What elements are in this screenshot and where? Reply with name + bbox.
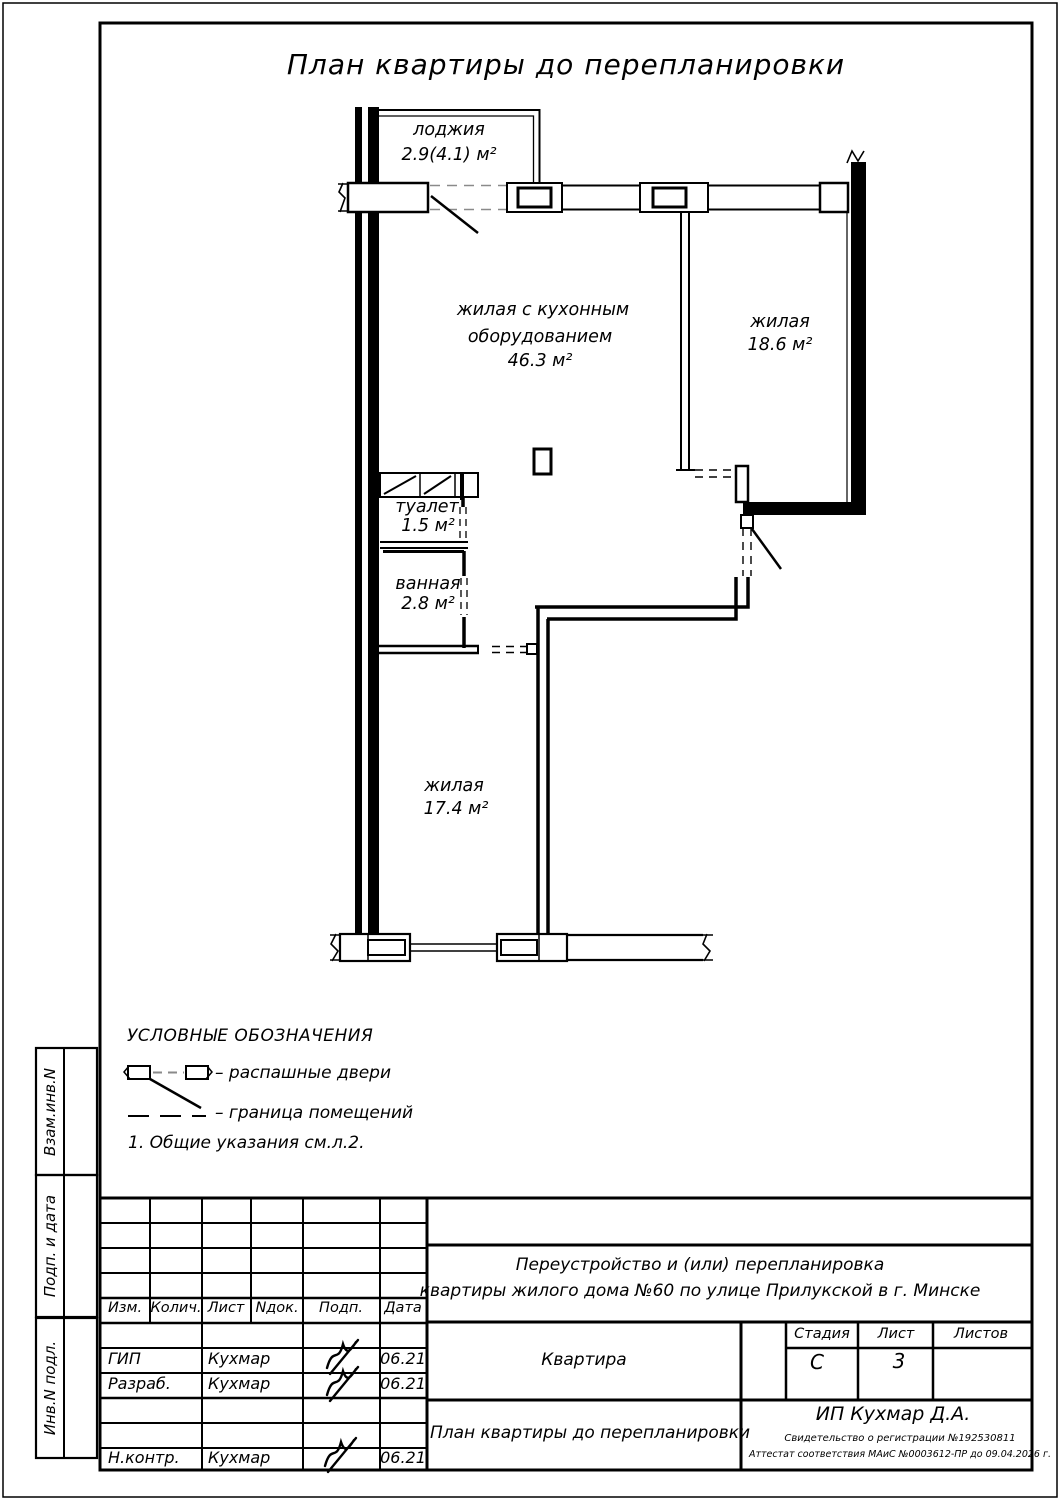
sidebar-label-vzam-inv: Взам.инв.N: [43, 1068, 59, 1156]
entrance-door-swing: [431, 196, 478, 233]
tb-certificate2: Аттестат соответствия МАиС №0003612-ПР д…: [749, 1450, 1051, 1460]
room-label-living-kitchen-2: оборудованием: [468, 328, 612, 346]
legend-item-swing-doors: – распашные двери: [215, 1065, 391, 1083]
tb-role-gip: ГИП: [108, 1351, 141, 1368]
room-area-bath: 2.8 м²: [401, 595, 455, 613]
tb-col-ndok: Nдок.: [255, 1301, 298, 1316]
legend-heading: УСЛОВНЫЕ ОБОЗНАЧЕНИЯ: [127, 1028, 373, 1046]
room-label-loggia: лоджия: [413, 121, 485, 139]
room-area-living-kitchen: 46.3 м²: [508, 352, 573, 370]
legend-item-room-boundary: – граница помещений: [215, 1105, 413, 1123]
room-label-toilet: туалет: [395, 498, 458, 516]
corridor-walls: [535, 577, 748, 934]
room-label-bath: ванная: [395, 575, 460, 593]
tb-sheets-label: Листов: [954, 1327, 1008, 1342]
signatures: [325, 1340, 358, 1472]
tb-col-podp: Подп.: [319, 1301, 363, 1316]
room-label-living-bottom: жилая: [424, 777, 484, 795]
tb-name-nkontr: Кухмар: [208, 1450, 270, 1467]
room-area-living-bottom: 17.4 м²: [424, 800, 489, 818]
legend-note: 1. Общие указания см.л.2.: [128, 1135, 364, 1153]
drawing-sheet: План квартиры до перепланировки лоджия 2…: [0, 0, 1060, 1500]
tb-date-nkontr: 06.21: [380, 1450, 426, 1467]
sidebar-label-podp-data: Подп. и дата: [43, 1195, 59, 1297]
legend-symbols: [124, 1066, 212, 1116]
tb-stage-value: С: [810, 1352, 824, 1373]
tb-project-line2: квартиры жилого дома №60 по улице Прилук…: [420, 1283, 981, 1301]
right-room-door: [741, 515, 781, 576]
tb-certificate1: Свидетельство о регистрации №192530811: [784, 1434, 1015, 1445]
tb-col-kolich: Колич.: [150, 1301, 201, 1316]
corner-wall-block: [820, 183, 848, 212]
bottom-wall-band: [330, 934, 713, 961]
wall-break-top-right: [847, 151, 864, 163]
tb-sheet-value: 3: [893, 1351, 906, 1372]
signature-nkontr: [325, 1438, 356, 1472]
room-label-living-kitchen-1: жилая с кухонным: [457, 301, 629, 319]
tb-date-razrab: 06.21: [380, 1376, 426, 1393]
vent-shaft: [380, 473, 478, 500]
room-label-living-right: жилая: [750, 313, 810, 331]
tb-role-razrab: Разраб.: [108, 1376, 171, 1393]
room-area-loggia: 2.9(4.1) м²: [401, 146, 496, 164]
tb-stage-label: Стадия: [794, 1327, 850, 1342]
drawing-linework: [0, 0, 1060, 1500]
wall-break-bottom-right: [702, 934, 713, 961]
tb-drawing-name: План квартиры до перепланировки: [430, 1425, 750, 1443]
tb-col-izm: Изм.: [108, 1301, 142, 1316]
tb-object-name: Квартира: [541, 1352, 626, 1370]
tb-name-gip: Кухмар: [208, 1351, 270, 1368]
duct-column: [534, 449, 551, 474]
tb-date-gip: 06.21: [380, 1351, 426, 1368]
window-2: [640, 183, 708, 212]
room-area-living-right: 18.6 м²: [748, 336, 813, 354]
tb-company: ИП Кухмар Д.А.: [816, 1405, 971, 1425]
tb-col-data: Дата: [384, 1301, 422, 1316]
sidebar-label-inv-podl: Инв.N подл.: [43, 1341, 59, 1435]
entrance-wall-block: [348, 183, 428, 212]
right-room-door-swing: [752, 529, 781, 569]
tb-col-list: Лист: [208, 1301, 245, 1316]
tb-sheet-label: Лист: [878, 1327, 915, 1342]
tb-name-razrab: Кухмар: [208, 1376, 270, 1393]
partition-right-room: [676, 212, 748, 502]
window-1: [507, 183, 562, 212]
swing-doors-symbol: [124, 1066, 212, 1108]
page-title: План квартиры до перепланировки: [287, 50, 845, 79]
room-area-toilet: 1.5 м²: [401, 517, 455, 535]
tb-role-nkontr: Н.контр.: [108, 1450, 180, 1467]
tb-project-line1: Переустройство и (или) перепланировка: [516, 1257, 884, 1275]
